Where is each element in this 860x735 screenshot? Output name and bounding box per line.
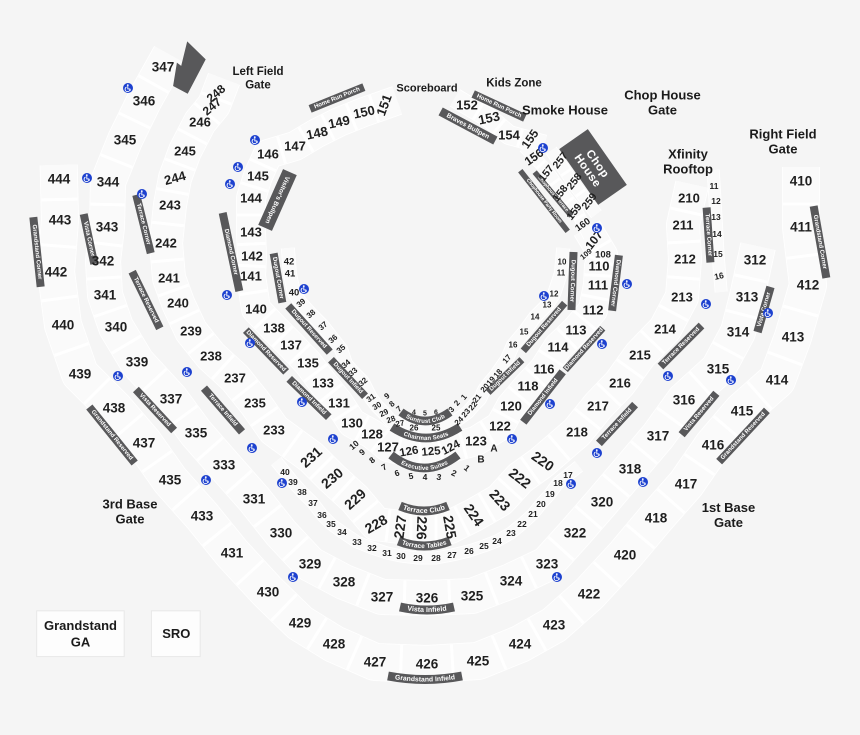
svg-text:13: 13 [711,212,721,222]
svg-text:GA: GA [71,634,91,649]
svg-text:323: 323 [536,557,559,572]
svg-text:Grandstand: Grandstand [44,618,117,633]
svg-text:216: 216 [609,376,631,391]
svg-text:146: 146 [257,147,279,162]
svg-text:344: 344 [97,175,120,190]
svg-text:233: 233 [263,423,285,438]
svg-text:123: 123 [465,434,487,449]
svg-text:114: 114 [548,340,570,355]
svg-text:317: 317 [647,429,670,444]
svg-text:331: 331 [243,492,266,507]
svg-text:415: 415 [731,404,754,419]
svg-text:243: 243 [159,198,181,213]
svg-text:154: 154 [498,128,520,143]
svg-text:42: 42 [284,257,295,268]
svg-text:Smoke House: Smoke House [522,103,608,118]
svg-text:245: 245 [174,144,196,159]
svg-text:138: 138 [263,321,285,336]
svg-text:335: 335 [185,426,208,441]
svg-text:Left Field: Left Field [232,66,283,78]
svg-text:131: 131 [328,396,350,411]
svg-text:213: 213 [671,290,693,305]
svg-text:320: 320 [591,495,614,510]
svg-text:427: 427 [364,655,387,670]
svg-text:241: 241 [158,271,180,286]
svg-text:433: 433 [191,509,214,524]
svg-text:19: 19 [545,489,555,499]
svg-text:Gate: Gate [769,142,798,157]
svg-text:28: 28 [431,553,441,563]
svg-text:217: 217 [587,399,609,414]
svg-text:227: 227 [390,514,409,540]
svg-text:435: 435 [159,473,182,488]
svg-text:442: 442 [45,265,68,280]
svg-text:20: 20 [536,499,546,509]
svg-text:33: 33 [352,537,362,547]
svg-text:13: 13 [543,301,552,310]
svg-text:343: 343 [96,220,119,235]
svg-text:325: 325 [461,589,484,604]
svg-text:38: 38 [297,487,307,497]
svg-text:27: 27 [447,550,457,560]
svg-text:422: 422 [578,587,601,602]
svg-text:339: 339 [126,355,149,370]
svg-text:18: 18 [553,478,563,488]
svg-text:12: 12 [711,196,721,206]
svg-text:413: 413 [782,330,805,345]
svg-text:330: 330 [270,526,293,541]
svg-text:235: 235 [244,396,266,411]
svg-text:239: 239 [180,324,202,339]
svg-text:23: 23 [506,528,516,538]
svg-text:444: 444 [48,172,71,187]
svg-text:Kids Zone: Kids Zone [486,78,542,90]
svg-text:40: 40 [289,288,300,299]
svg-text:423: 423 [543,618,566,633]
svg-text:426: 426 [416,657,439,672]
svg-text:127: 127 [377,440,399,455]
svg-text:Gate: Gate [648,103,677,118]
svg-text:439: 439 [69,367,92,382]
svg-text:246: 246 [189,115,211,130]
svg-text:414: 414 [766,373,789,388]
svg-text:17: 17 [563,470,573,480]
svg-text:10: 10 [558,258,567,267]
svg-text:Scoreboard: Scoreboard [396,83,457,95]
svg-text:312: 312 [744,253,767,268]
svg-text:144: 144 [240,191,262,206]
svg-text:3rd Base: 3rd Base [103,497,158,512]
svg-text:141: 141 [240,269,262,284]
svg-text:411: 411 [790,220,812,235]
svg-text:140: 140 [245,302,267,317]
svg-text:314: 314 [727,325,750,340]
svg-text:128: 128 [361,427,383,442]
svg-text:346: 346 [133,94,156,109]
svg-text:29: 29 [413,553,423,563]
svg-text:Right Field: Right Field [749,127,816,142]
svg-text:32: 32 [367,543,377,553]
svg-text:12: 12 [550,290,559,299]
svg-text:Gate: Gate [116,512,145,527]
svg-text:Gate: Gate [245,79,271,91]
svg-text:39: 39 [288,477,298,487]
svg-text:Gate: Gate [714,515,743,530]
svg-text:437: 437 [133,436,156,451]
svg-text:37: 37 [308,498,318,508]
svg-text:340: 340 [105,320,128,335]
svg-text:135: 135 [297,356,319,371]
svg-text:113: 113 [566,323,587,338]
svg-text:30: 30 [396,551,406,561]
svg-text:41: 41 [285,269,296,280]
svg-text:130: 130 [341,416,363,431]
svg-text:425: 425 [467,654,490,669]
svg-text:431: 431 [221,546,244,561]
svg-text:318: 318 [619,462,642,477]
svg-text:26: 26 [410,424,419,433]
svg-text:328: 328 [333,575,356,590]
svg-text:15: 15 [713,249,723,259]
svg-text:125: 125 [421,445,442,459]
svg-text:324: 324 [500,574,523,589]
svg-text:416: 416 [702,438,725,453]
svg-text:342: 342 [92,254,115,269]
svg-text:313: 313 [736,290,759,305]
svg-text:Rooftop: Rooftop [663,162,713,177]
svg-text:116: 116 [534,362,555,377]
svg-text:137: 137 [280,338,302,353]
svg-text:133: 133 [312,376,334,391]
svg-text:142: 142 [241,249,263,264]
svg-text:438: 438 [103,401,126,416]
svg-text:347: 347 [152,60,175,75]
svg-text:152: 152 [456,98,478,113]
svg-text:322: 322 [564,526,587,541]
svg-text:326: 326 [416,591,439,606]
svg-text:31: 31 [382,548,392,558]
svg-text:345: 345 [114,133,137,148]
svg-text:112: 112 [583,303,604,318]
svg-text:430: 430 [257,585,280,600]
svg-text:Chop House: Chop House [624,88,701,103]
svg-text:A: A [490,444,497,455]
svg-text:34: 34 [337,527,347,537]
svg-text:327: 327 [371,590,394,605]
svg-text:1st Base: 1st Base [702,500,755,515]
svg-text:420: 420 [614,548,637,563]
svg-text:21: 21 [528,509,538,519]
svg-text:410: 410 [790,174,813,189]
svg-text:337: 337 [160,392,183,407]
svg-text:15: 15 [520,328,529,337]
svg-text:5: 5 [423,411,427,418]
svg-text:143: 143 [240,225,262,240]
svg-text:238: 238 [200,349,222,364]
svg-text:341: 341 [94,288,117,303]
svg-text:237: 237 [224,371,246,386]
svg-text:218: 218 [566,425,588,440]
svg-text:22: 22 [517,519,527,529]
svg-text:122: 122 [489,419,511,434]
svg-text:25: 25 [432,424,441,433]
svg-text:14: 14 [712,229,722,239]
svg-text:412: 412 [797,278,820,293]
svg-text:429: 429 [289,616,312,631]
svg-text:316: 316 [673,393,696,408]
svg-text:11: 11 [710,181,719,191]
svg-text:25: 25 [479,541,489,551]
svg-text:418: 418 [645,511,668,526]
svg-text:B: B [477,455,484,466]
svg-text:110: 110 [589,259,610,274]
svg-text:SRO: SRO [162,626,190,641]
svg-text:14: 14 [531,313,540,322]
svg-text:424: 424 [509,637,532,652]
svg-text:16: 16 [509,341,518,350]
svg-text:111: 111 [588,278,608,293]
svg-text:26: 26 [464,546,474,556]
svg-text:118: 118 [518,379,539,394]
svg-text:440: 440 [52,318,75,333]
svg-text:240: 240 [167,296,189,311]
svg-text:417: 417 [675,477,698,492]
svg-text:443: 443 [49,213,72,228]
svg-text:35: 35 [326,519,336,529]
svg-text:226: 226 [414,516,431,540]
svg-text:40: 40 [280,467,290,477]
svg-text:147: 147 [284,139,306,154]
svg-text:315: 315 [707,362,730,377]
svg-text:4: 4 [423,472,428,482]
svg-text:120: 120 [500,399,522,414]
svg-text:333: 333 [213,458,236,473]
svg-text:Xfinity: Xfinity [668,147,708,162]
svg-text:145: 145 [247,169,269,184]
svg-text:24: 24 [492,536,502,546]
svg-text:214: 214 [654,322,676,337]
svg-text:242: 242 [155,236,177,251]
svg-text:428: 428 [323,637,346,652]
svg-text:212: 212 [674,252,696,267]
svg-text:329: 329 [299,557,322,572]
svg-text:211: 211 [673,218,694,233]
svg-text:210: 210 [678,191,700,206]
svg-text:11: 11 [557,269,566,278]
svg-text:215: 215 [629,348,651,363]
